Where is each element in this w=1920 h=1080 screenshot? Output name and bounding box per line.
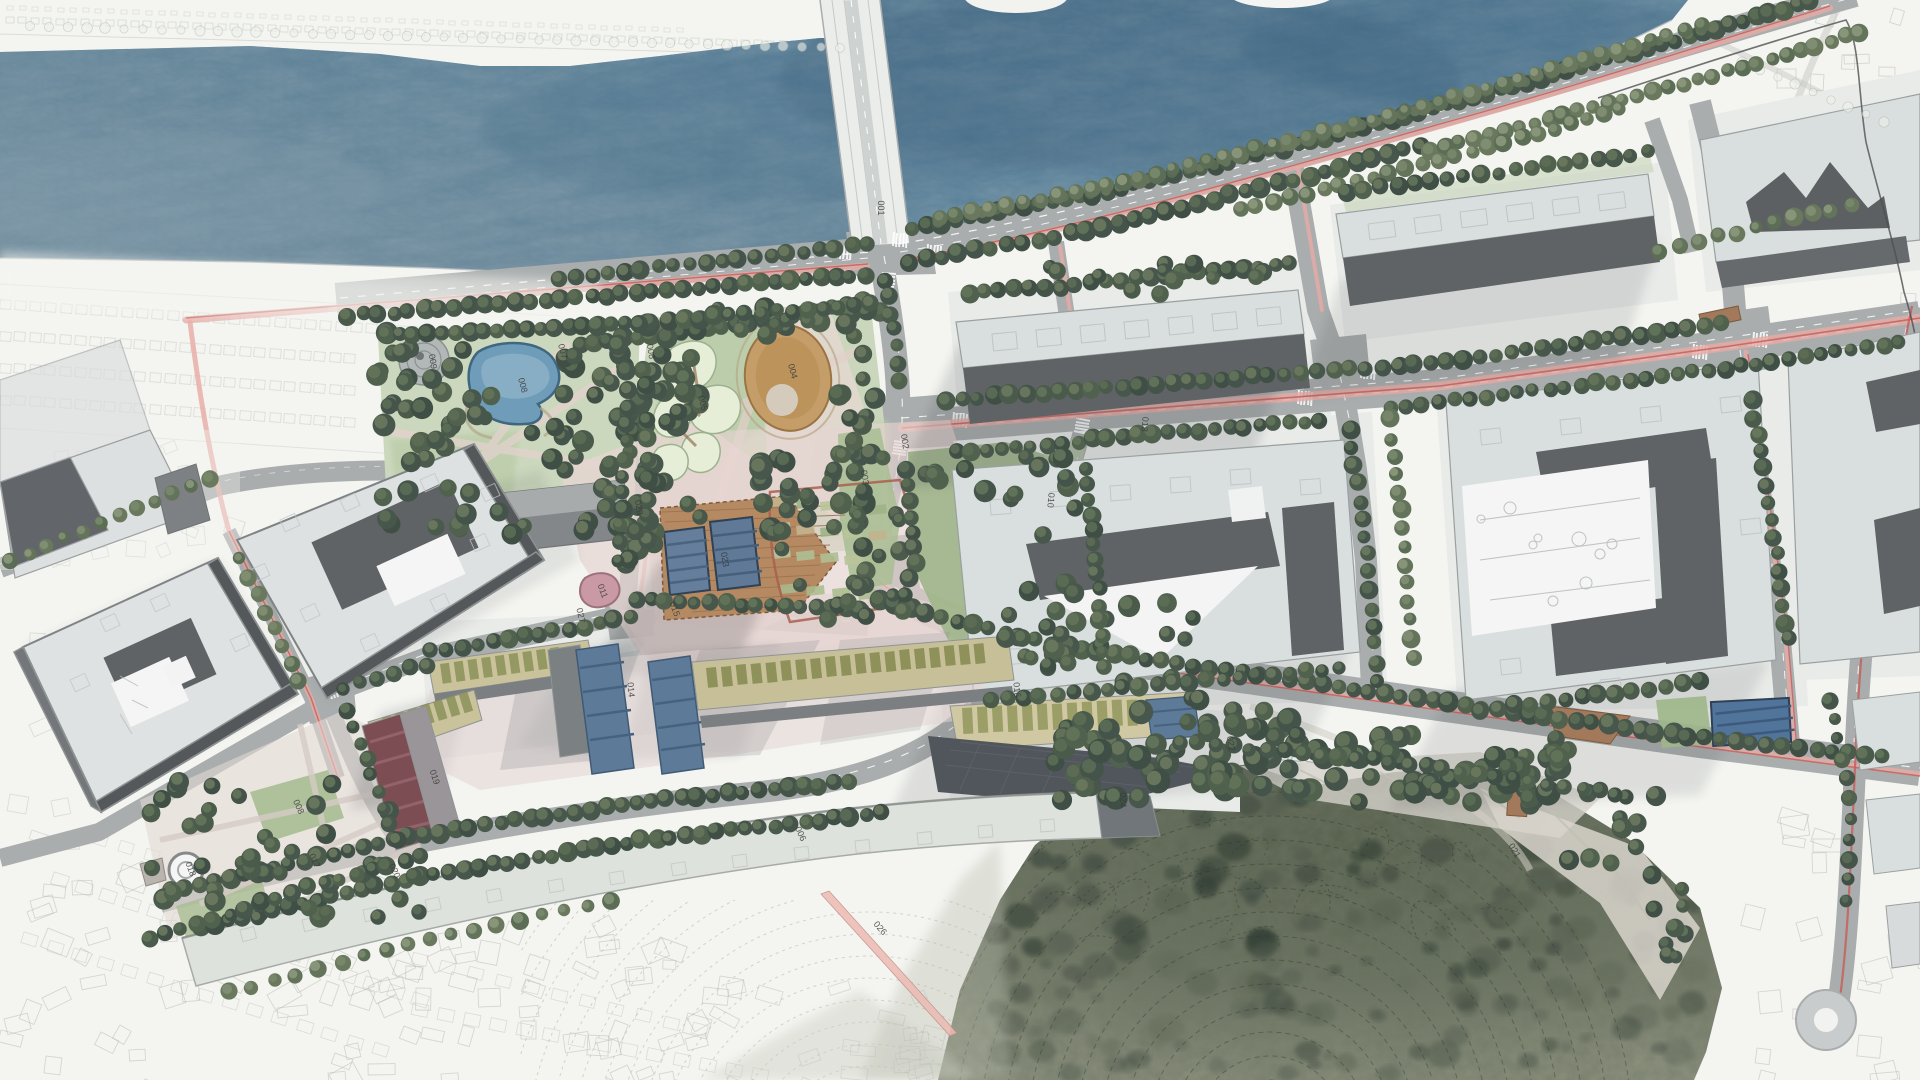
svg-text:010: 010 (1045, 492, 1056, 508)
svg-text:014: 014 (625, 682, 636, 698)
svg-text:001: 001 (876, 200, 886, 215)
svg-text:024: 024 (1118, 792, 1128, 807)
svg-text:016: 016 (1011, 682, 1022, 698)
svg-text:013: 013 (1139, 416, 1150, 432)
